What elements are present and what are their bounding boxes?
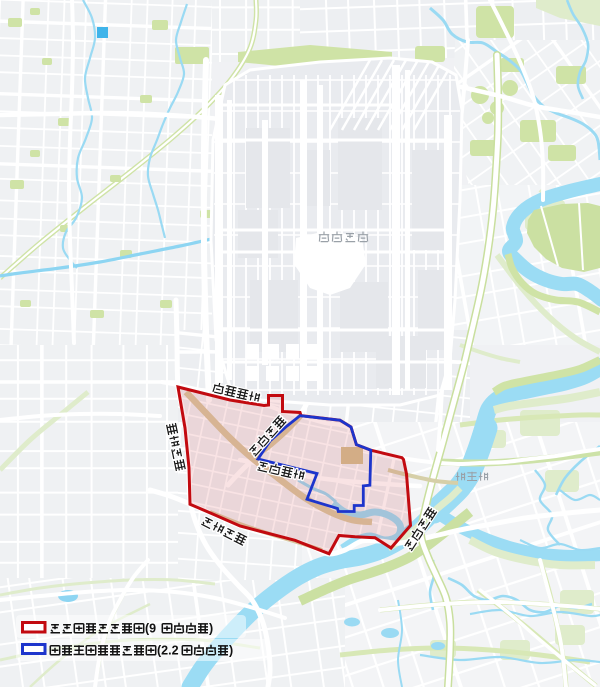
svg-text:(9: (9 xyxy=(145,622,156,636)
svg-text:): ) xyxy=(229,644,233,658)
svg-text:(2.2: (2.2 xyxy=(157,644,179,658)
svg-text:): ) xyxy=(209,622,213,636)
